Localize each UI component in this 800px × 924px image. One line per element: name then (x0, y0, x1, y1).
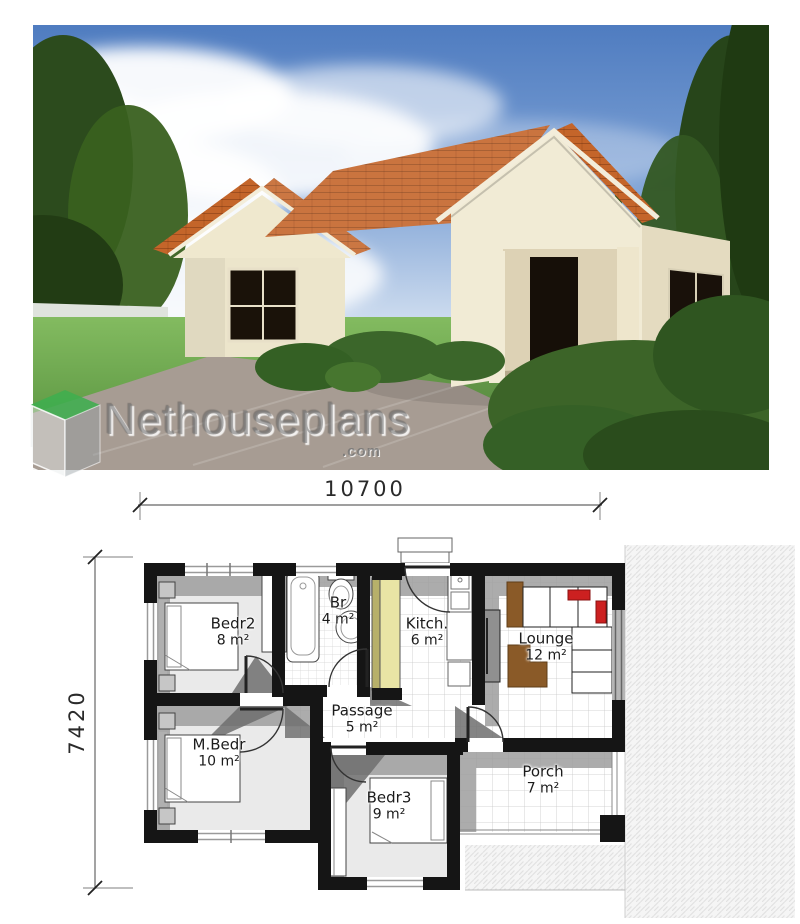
room-label-bedr2: Bedr2 8 m² (211, 615, 256, 648)
room-label-lounge: Lounge 12 m² (518, 630, 573, 663)
room-label-kitchen: Kitch. 6 m² (406, 615, 448, 648)
house-render-photo: Nethouseplans .com (33, 25, 769, 470)
dimension-height-label: 7420 (65, 689, 89, 754)
house-render-scene (33, 25, 769, 470)
room-label-mbedr: M.Bedr 10 m² (193, 736, 246, 769)
dimension-width-label: 10700 (324, 477, 406, 501)
room-label-bedr3: Bedr3 9 m² (367, 789, 412, 822)
page: Nethouseplans .com (0, 0, 800, 924)
floor-plan-drawing (60, 470, 800, 924)
floor-plan: 10700 7420 Bedr2 8 m² Br 4 m² Kitch. 6 m… (0, 470, 800, 924)
room-label-porch: Porch 7 m² (522, 763, 563, 796)
room-label-br: Br 4 m² (322, 594, 355, 627)
room-label-passage: Passage 5 m² (331, 702, 392, 735)
back-steps (398, 538, 452, 576)
